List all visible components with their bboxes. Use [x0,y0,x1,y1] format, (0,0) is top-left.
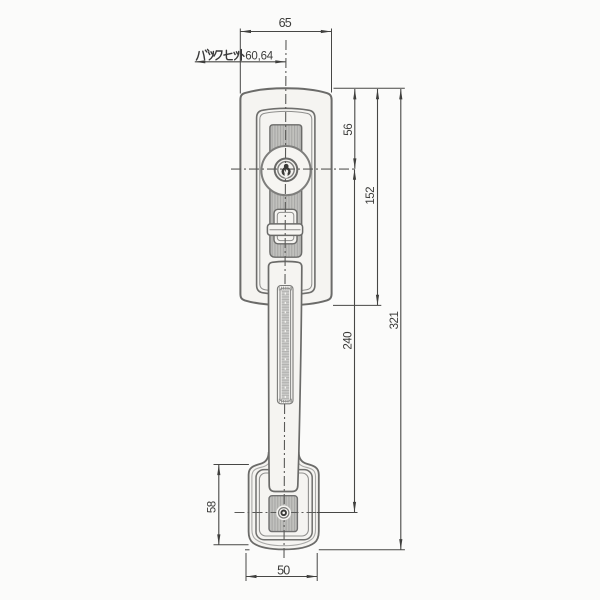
svg-text:50: 50 [277,564,290,578]
svg-text:60,64: 60,64 [245,50,274,62]
svg-text:240: 240 [342,332,354,350]
svg-text:152: 152 [365,187,377,205]
svg-text:65: 65 [279,16,292,30]
svg-text:58: 58 [206,501,218,513]
svg-text:56: 56 [343,124,355,136]
svg-text:321: 321 [389,312,401,330]
